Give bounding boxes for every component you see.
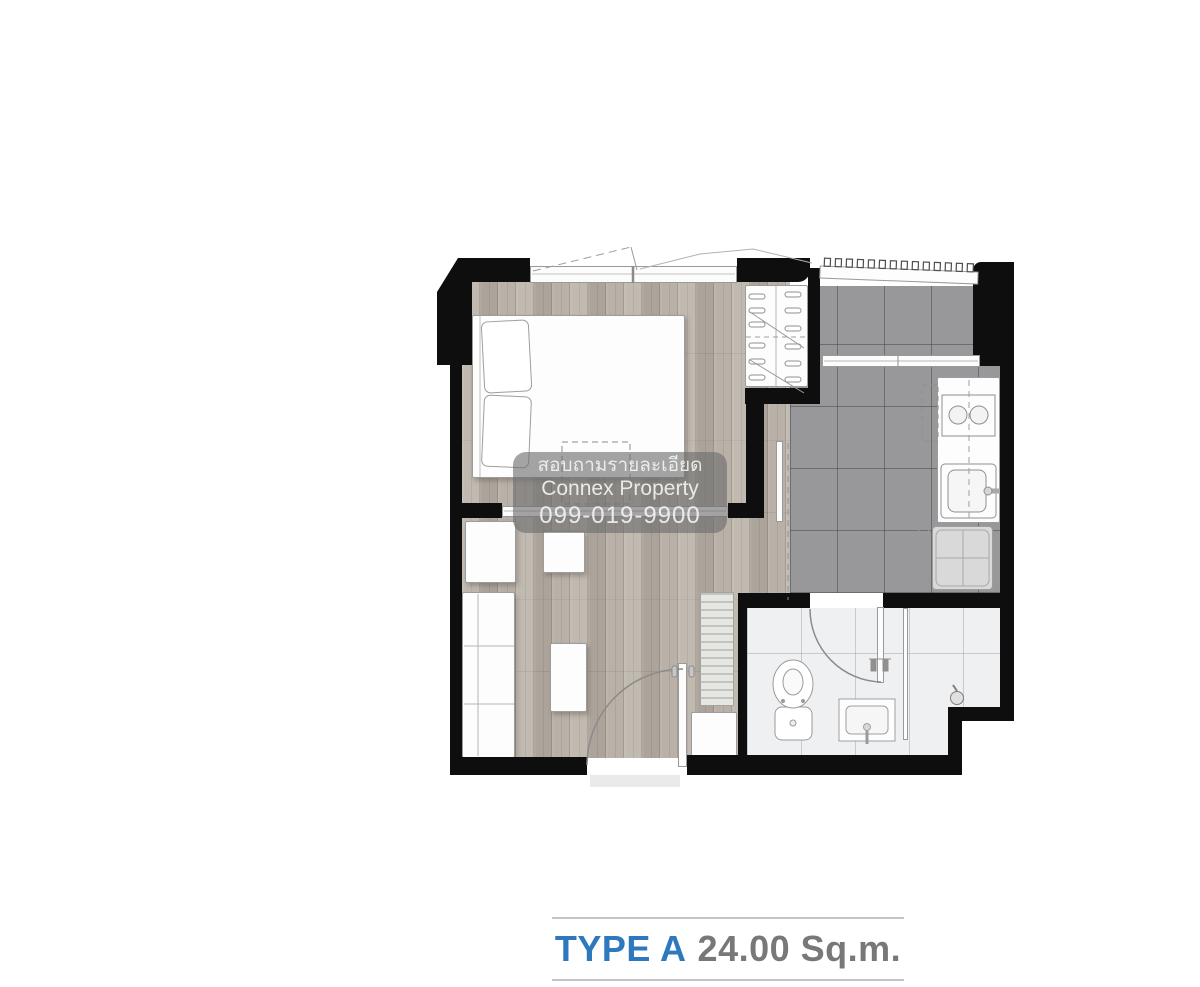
wall-bathroom-top-right xyxy=(883,593,1000,608)
wall-top-middle xyxy=(737,258,810,282)
unit-type-label: TYPE A xyxy=(555,928,687,970)
table xyxy=(465,521,516,583)
wall-partition-stub-right xyxy=(728,503,764,518)
wall-bathroom-top-left xyxy=(738,593,810,608)
wall-partition-stub-left xyxy=(453,503,502,518)
kitchen-counter xyxy=(937,377,1000,523)
wall-bottom-right xyxy=(687,755,962,775)
watermark-line-brand: Connex Property xyxy=(541,477,699,502)
kitchen-balcony-sliding-door xyxy=(822,355,980,367)
wall-right xyxy=(1000,360,1014,721)
shower-partition xyxy=(903,608,908,740)
balcony-railing xyxy=(820,258,979,284)
kitchen-sliding-panel xyxy=(776,441,783,522)
unit-area-label: 24.00 Sq.m. xyxy=(698,928,902,970)
bathroom-door-leaf xyxy=(877,607,884,683)
wall-bedroom-kitchen xyxy=(746,404,764,518)
floorplan-image: สอบถามรายละเอียด Connex Property 099-019… xyxy=(0,0,1200,987)
wall-left xyxy=(450,365,462,757)
side-table xyxy=(550,643,587,712)
watermark-line-thai: สอบถามรายละเอียด xyxy=(538,455,703,477)
bedroom-window xyxy=(530,266,737,283)
storage-box xyxy=(691,712,737,758)
wall-wardrobe-right xyxy=(808,268,820,395)
watermark: สอบถามรายละเอียด Connex Property 099-019… xyxy=(513,452,727,533)
bathroom-floor-upper xyxy=(747,608,1000,708)
shoe-rack xyxy=(700,592,734,706)
wall-bathroom-left xyxy=(738,593,747,758)
entrance-landing xyxy=(590,775,680,787)
wall-below-wardrobe xyxy=(745,388,820,404)
watermark-line-phone: 099-019-9900 xyxy=(539,502,700,530)
caption: TYPE A 24.00 Sq.m. xyxy=(552,917,904,981)
entrance-door-leaf xyxy=(678,663,687,767)
wall-bottom-left xyxy=(450,757,587,775)
washing-machine xyxy=(932,526,993,590)
sofa xyxy=(462,592,515,758)
wardrobe xyxy=(745,285,808,387)
wall-top-right-block xyxy=(973,262,1014,366)
stool xyxy=(543,531,585,573)
bathroom-floor-lower xyxy=(747,707,948,756)
